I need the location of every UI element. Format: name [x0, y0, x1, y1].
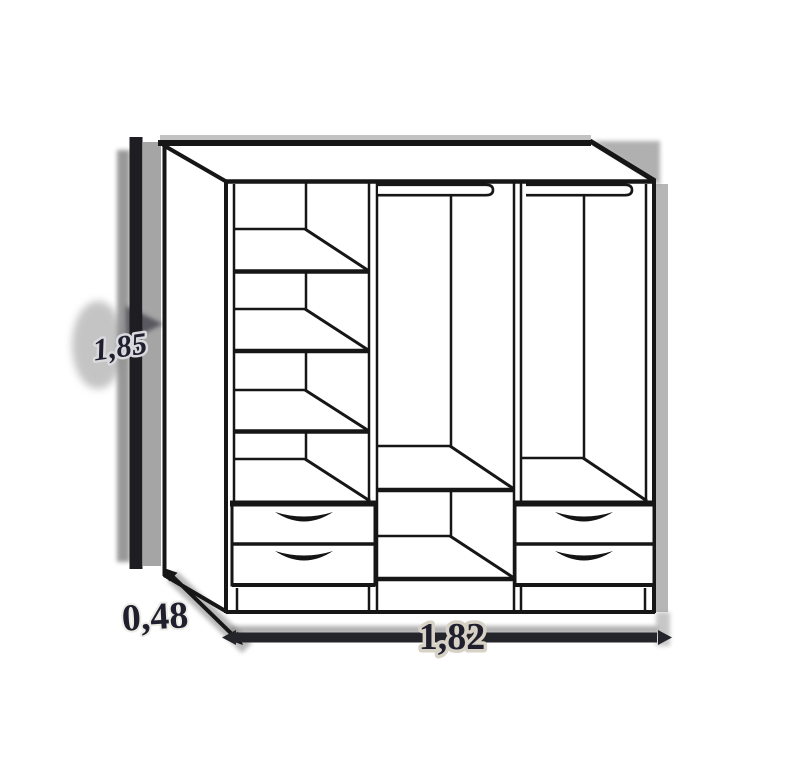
wardrobe-dimension-diagram: 1,85 0,48 1,82 [0, 0, 787, 770]
depth-dimension-label: 0,48 [121, 594, 190, 639]
diagram-canvas: 1,85 0,48 1,82 [0, 0, 787, 770]
shelf-side-edge [305, 390, 369, 431]
width-dimension-label: 1,82 [419, 616, 486, 658]
hanging-rail-middle-icon [378, 185, 493, 195]
left-side-panel [164, 144, 228, 613]
shelf-side-edge [450, 446, 514, 489]
shelf-side-edge [305, 459, 370, 501]
drawer-stack-right [513, 503, 655, 585]
shelf-column-left [234, 183, 370, 501]
hanging-rail-right-icon [526, 185, 632, 195]
shelf-middle-upper [377, 446, 514, 490]
top-panel [158, 141, 656, 182]
shelf-side-edge [450, 536, 514, 578]
shelf-middle-lower [377, 536, 514, 579]
shelf-1 [234, 229, 369, 272]
compartment-middle [377, 185, 514, 579]
shelf-right [521, 458, 647, 501]
shelf-side-edge [583, 458, 647, 501]
shelf-side-edge [305, 229, 369, 271]
shadow-right-side [656, 184, 668, 612]
shelf-4 [234, 459, 370, 501]
top-left-diagonal-edge [163, 145, 227, 182]
shelf-2 [234, 309, 369, 351]
drawer-stack-left [230, 503, 376, 585]
shelf-3 [234, 390, 369, 432]
height-dimension-label: 1,85 [91, 325, 150, 367]
compartment-right [521, 185, 647, 501]
shelf-side-edge [305, 309, 369, 351]
